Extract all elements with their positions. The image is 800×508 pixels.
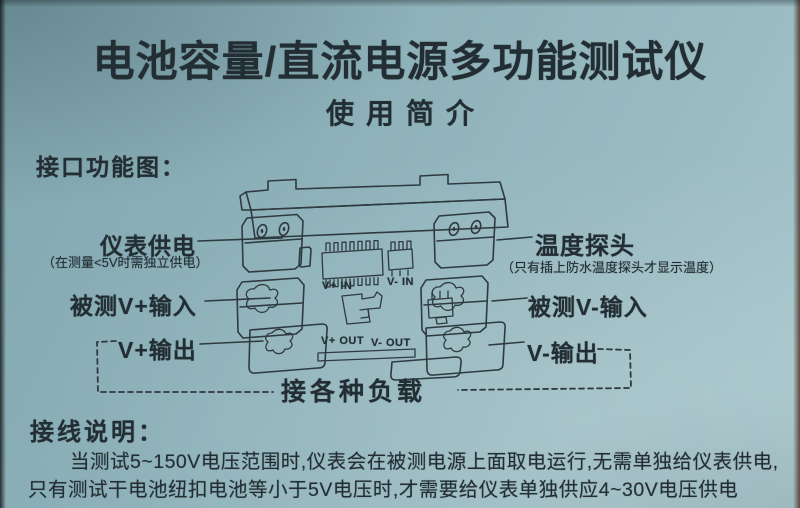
marking-v-minus-out: V- OUT xyxy=(371,337,411,349)
label-temp-probe-note: （只有插上防水温度探头才显示温度） xyxy=(501,257,722,276)
marking-v-plus-out: V+ OUT xyxy=(321,335,364,347)
wiring-heading: 接线说明： xyxy=(30,412,165,447)
label-v-minus-output: V-输出 xyxy=(527,334,599,368)
label-v-plus-output: V+输出 xyxy=(118,331,197,365)
label-meter-power-note: （在测量<5V时需独立供电） xyxy=(42,252,209,271)
label-temp-probe: 温度探头 xyxy=(535,226,635,261)
wiring-line-2: 只有测试干电池纽扣电池等小于5V电压时,才需要给仪表单独供应4~30V电压供电 xyxy=(28,473,738,502)
label-v-plus-input: 被测V+输入 xyxy=(70,287,197,321)
manual-page: 电池容量/直流电源多功能测试仪 使用简介 接口功能图： xyxy=(0,0,800,508)
label-load: 接各种负载 xyxy=(281,372,426,408)
wiring-line-1: 当测试5~150V电压范围时,仪表会在被测电源上面取电运行,无需单独给仪表供电, xyxy=(70,445,779,474)
marking-v-minus-in: V- IN xyxy=(387,276,414,288)
terminal-block-upper-right xyxy=(434,212,495,268)
marking-v-plus-in: V+ IN xyxy=(322,280,352,292)
label-v-minus-input: 被测V-输入 xyxy=(528,288,648,322)
